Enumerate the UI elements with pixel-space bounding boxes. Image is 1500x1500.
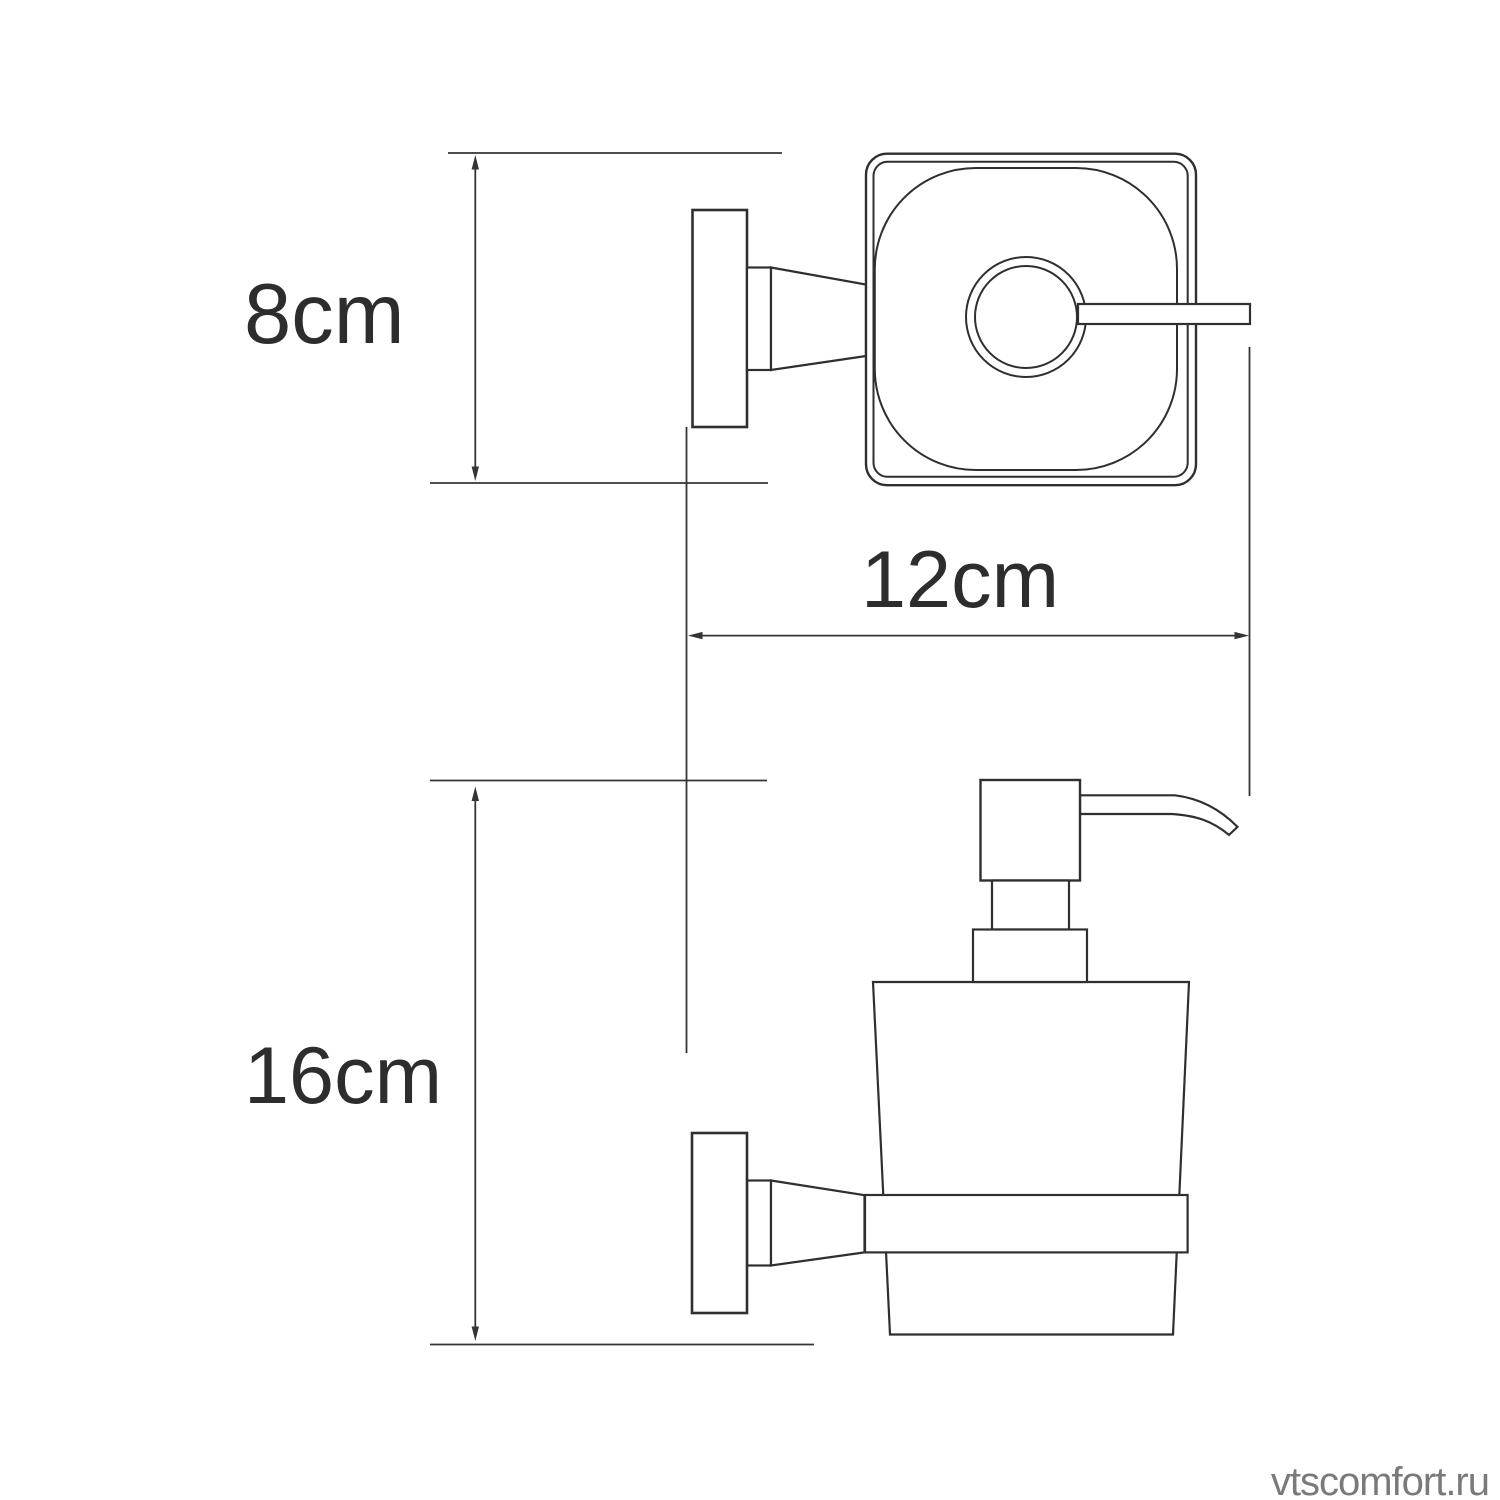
svg-text:8cm: 8cm xyxy=(244,267,405,362)
svg-text:vtscomfort.ru: vtscomfort.ru xyxy=(1271,1460,1489,1500)
svg-text:16cm: 16cm xyxy=(244,1031,442,1121)
svg-text:12cm: 12cm xyxy=(861,535,1059,625)
